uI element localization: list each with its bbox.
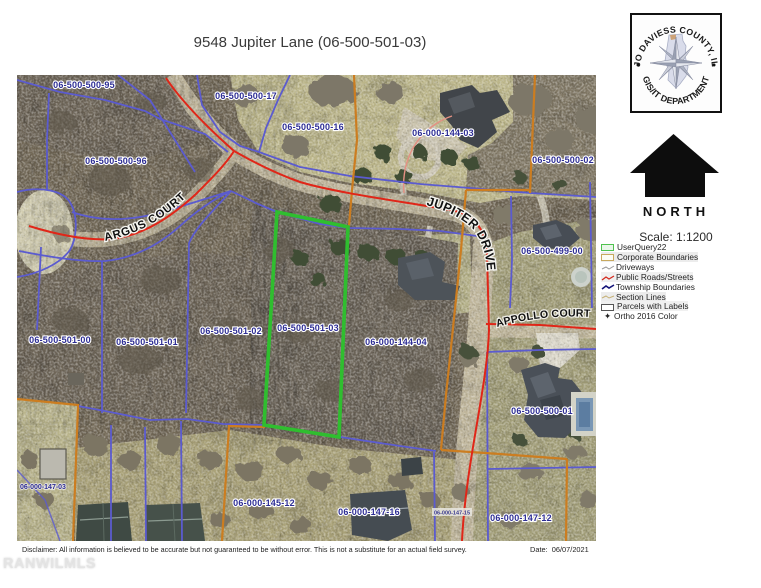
svg-text:06-500-500-02: 06-500-500-02: [532, 155, 594, 165]
svg-text:06-500-499-00: 06-500-499-00: [521, 246, 583, 256]
svg-text:06-500-500-95: 06-500-500-95: [53, 80, 115, 90]
svg-text:06-500-500-17: 06-500-500-17: [215, 91, 277, 101]
svg-text:06-000-145-12: 06-000-145-12: [233, 498, 295, 508]
svg-text:06-000-144-03: 06-000-144-03: [412, 128, 474, 138]
svg-text:06-000-147-12: 06-000-147-12: [490, 513, 552, 523]
svg-text:06-500-501-03: 06-500-501-03: [277, 323, 339, 333]
svg-text:06-000-144-04: 06-000-144-04: [365, 337, 427, 347]
svg-text:06-000-147-16: 06-000-147-16: [338, 507, 400, 517]
svg-text:06-500-500-01: 06-500-500-01: [511, 406, 573, 416]
svg-text:06-000-147-15: 06-000-147-15: [434, 511, 470, 517]
svg-text:06-500-500-16: 06-500-500-16: [282, 122, 344, 132]
svg-text:06-500-501-00: 06-500-501-00: [29, 335, 91, 345]
svg-text:06-000-147-03: 06-000-147-03: [20, 484, 66, 491]
svg-text:06-500-501-01: 06-500-501-01: [116, 337, 178, 347]
svg-text:06-500-500-96: 06-500-500-96: [85, 156, 147, 166]
svg-text:06-500-501-02: 06-500-501-02: [200, 326, 262, 336]
